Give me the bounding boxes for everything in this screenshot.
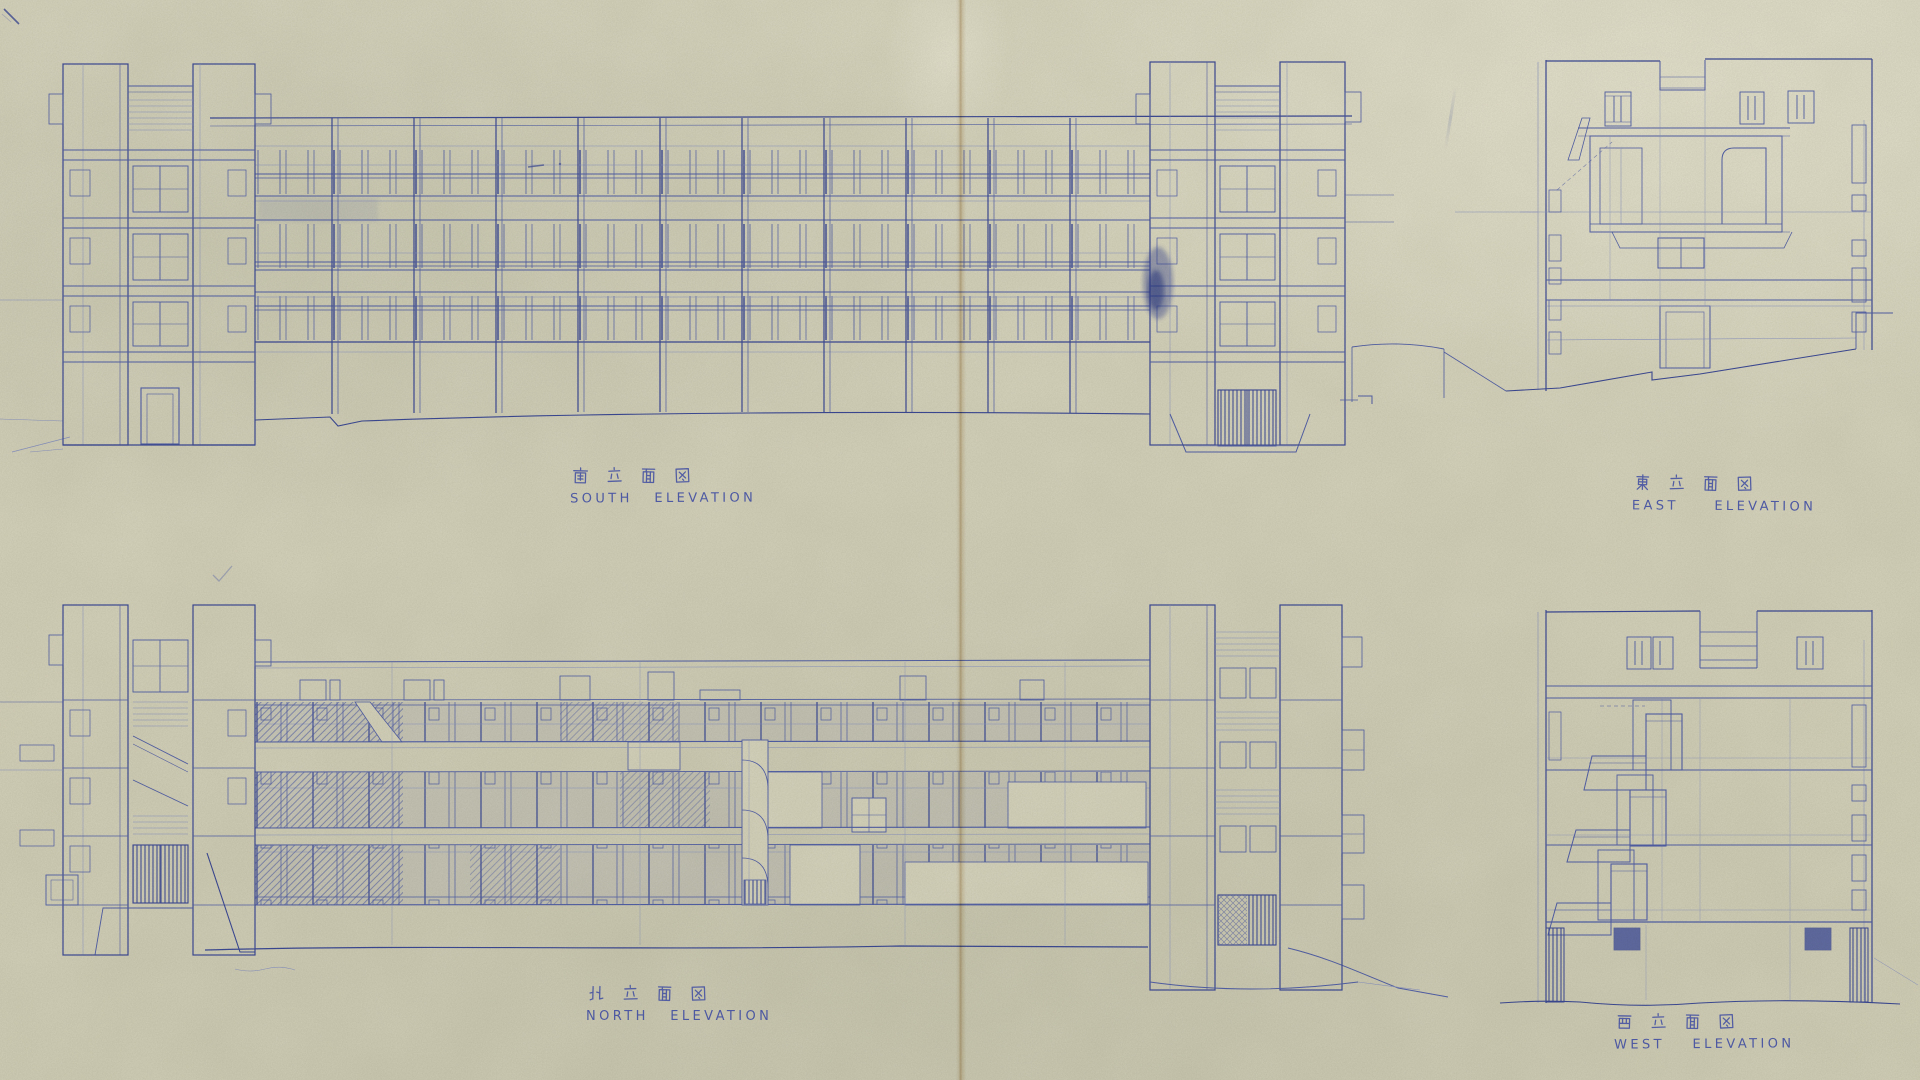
south-elevation-label: SOUTH ELEVATION (570, 464, 756, 507)
south-elevation-drawing (0, 9, 1506, 452)
south-elevation-title: SOUTH ELEVATION (570, 491, 756, 507)
west-elevation-drawing (1500, 610, 1918, 1005)
north-elevation-kanji-title (586, 982, 736, 1008)
elevation-drawings-canvas (0, 0, 1920, 1080)
south-left-stair-tower (30, 64, 271, 452)
north-elevation-title: NORTH ELEVATION (586, 1009, 772, 1024)
east-elevation-label: EAST ELEVATION (1632, 471, 1817, 514)
east-elevation-drawing (1455, 59, 1893, 391)
west-elevation-label: WEST ELEVATION (1614, 1009, 1795, 1052)
north-elevation-label: NORTH ELEVATION (586, 982, 772, 1024)
north-left-stair-tower (0, 605, 271, 955)
east-elevation-title: EAST ELEVATION (1632, 498, 1816, 514)
north-stair-bay (742, 740, 768, 905)
west-elevation-title: WEST ELEVATION (1614, 1036, 1794, 1052)
west-elevation-kanji-title (1614, 1010, 1764, 1037)
blueprint-sheet: SOUTH ELEVATION EAST ELEVATION NORTH ELE… (0, 0, 1920, 1080)
north-elevation-drawing (0, 566, 1448, 997)
east-elevation-kanji-title (1632, 471, 1782, 498)
south-right-stair-tower (1136, 62, 1506, 452)
south-elevation-kanji-title (570, 464, 720, 491)
north-right-stair-tower (1150, 605, 1420, 990)
